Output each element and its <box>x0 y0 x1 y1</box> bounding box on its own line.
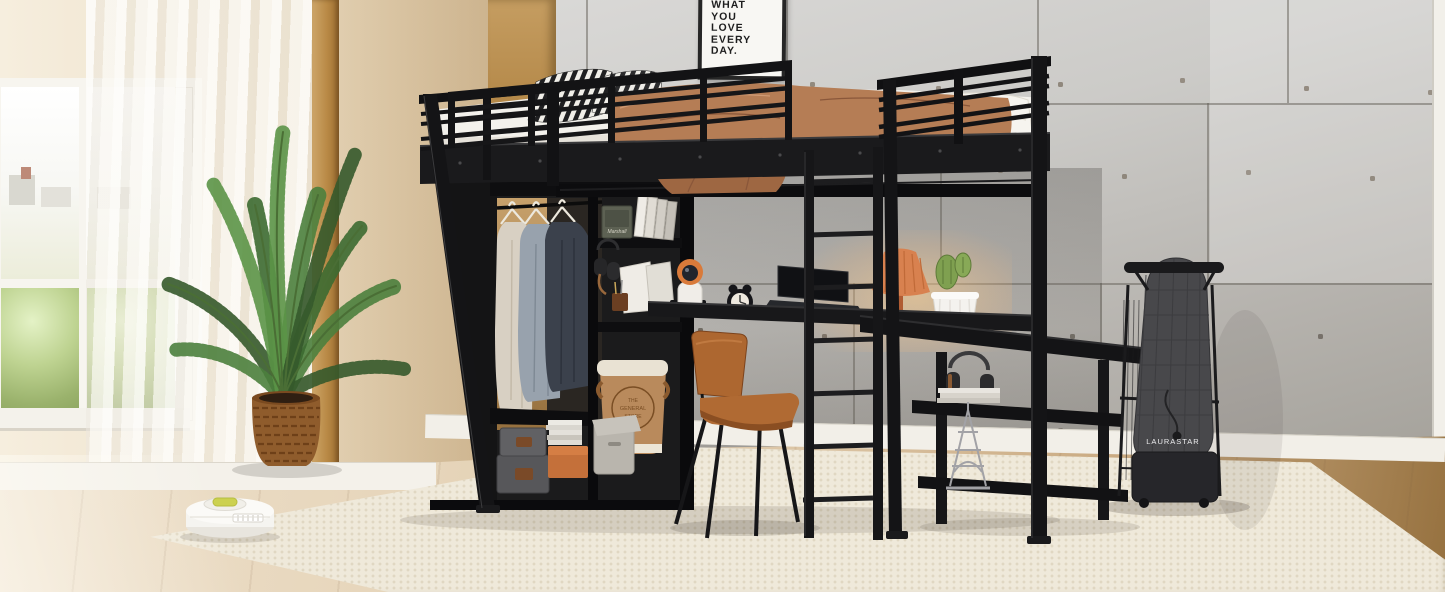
palm-plant <box>168 132 404 466</box>
ironing-board-handle <box>1124 262 1224 273</box>
ironing-board-base <box>1132 452 1218 502</box>
bed-post-rear <box>547 86 559 186</box>
shelf-board <box>598 322 682 332</box>
shelf-books <box>634 196 677 240</box>
ladder <box>803 147 883 540</box>
loft-bed-product-photo: WHAT YOU LOVE EVERY DAY. <box>0 0 1445 592</box>
basket-stamp-line: THE <box>628 398 639 404</box>
ironing-board-brand-label: LAURASTAR <box>1146 437 1199 446</box>
wardrobe-plinth <box>430 500 694 510</box>
shelf-leg <box>936 352 947 524</box>
furniture-layer: Marshall <box>0 0 1445 592</box>
hanging-jacket-dark <box>545 222 590 392</box>
shelf-headphones <box>946 353 994 394</box>
bed-post-right <box>1031 56 1047 540</box>
vacuum-accent <box>213 498 237 506</box>
robot-vacuum <box>186 498 274 539</box>
basket-stamp-line: GENERAL <box>620 406 646 412</box>
pencil-cup <box>612 293 628 311</box>
shelf-book-stack <box>937 388 1000 403</box>
fabric-storage-box <box>592 415 641 474</box>
ladder-rail <box>873 147 883 540</box>
speaker-brand-label: Marshall <box>608 229 628 235</box>
plant-basket-pot <box>252 391 320 466</box>
ladder-rungs <box>803 180 878 500</box>
book-stack <box>546 420 582 445</box>
ironing-board: LAURASTAR <box>1119 258 1283 530</box>
